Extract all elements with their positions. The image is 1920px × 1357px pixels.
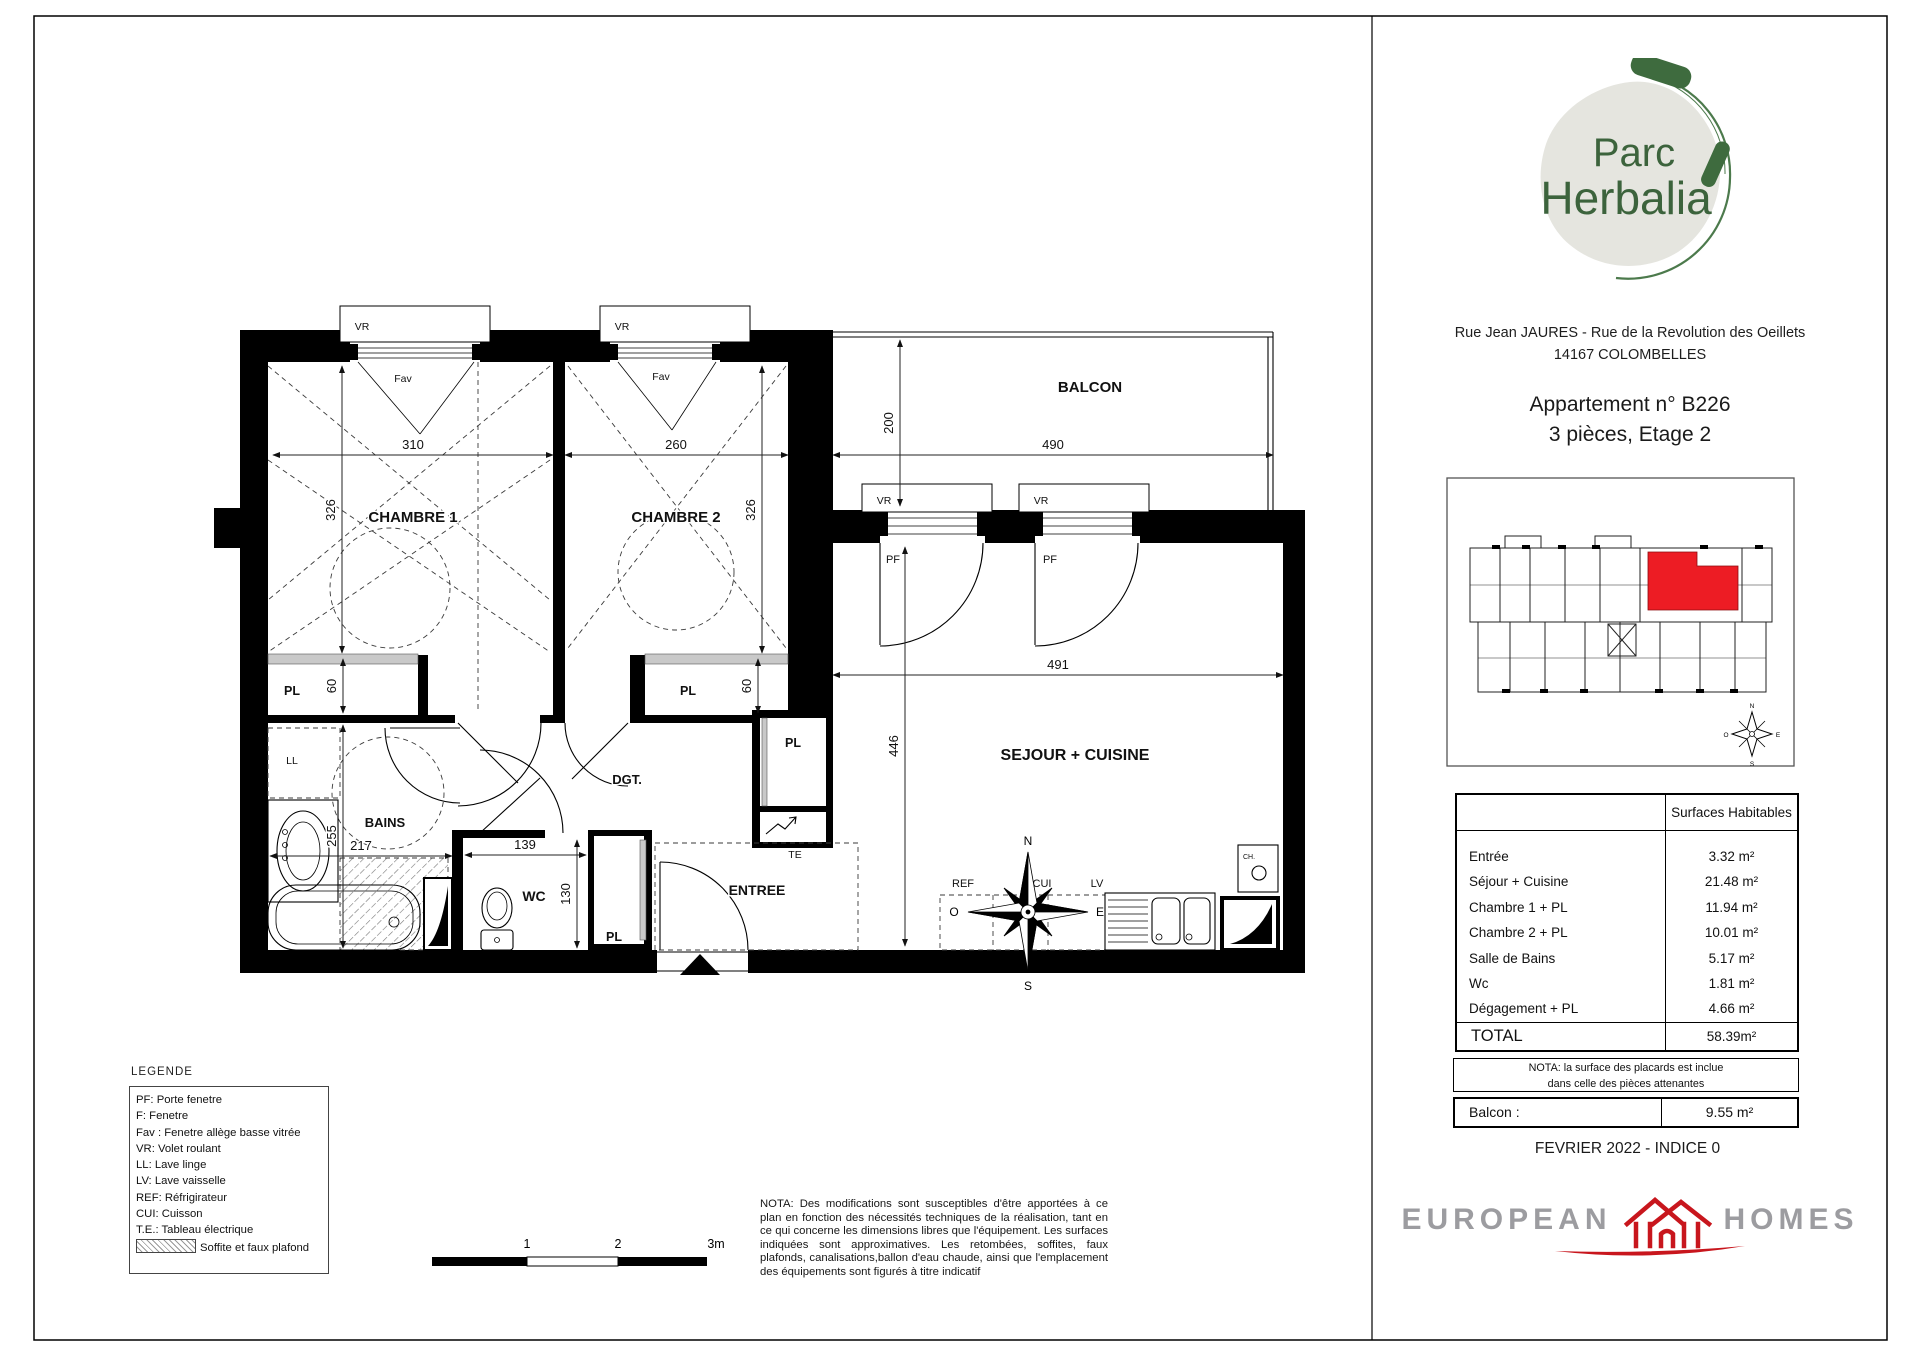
row-label: Salle de Bains — [1469, 946, 1665, 971]
scale-bar: 1 2 3m — [432, 1237, 725, 1266]
dim-c2-width: 260 — [665, 437, 687, 452]
compass-n: N — [1024, 834, 1033, 848]
label-sejour: SEJOUR + CUISINE — [1001, 747, 1150, 764]
row-label: Entrée — [1469, 844, 1665, 869]
row-label: Dégagement + PL — [1469, 996, 1665, 1021]
placards-nota-line2: dans celle des pièces attenantes — [1454, 1077, 1798, 1093]
dim-bains-height: 255 — [324, 825, 339, 847]
balcony-outline — [833, 332, 1273, 510]
soffite-swatch-icon — [136, 1239, 196, 1253]
legend-item: REF: Réfrigirateur — [136, 1190, 322, 1206]
tag-pf-1: PF — [886, 554, 900, 566]
compass-o: O — [949, 905, 958, 919]
total-value: 58.39m² — [1665, 1022, 1797, 1052]
tag-pl-2: PL — [680, 684, 696, 698]
label-chambre2: CHAMBRE 2 — [631, 509, 720, 526]
label-chambre1: CHAMBRE 1 — [368, 509, 457, 526]
legend-item: LV: Lave vaisselle — [136, 1173, 322, 1189]
row-label: Wc — [1469, 971, 1665, 996]
scale-2: 2 — [615, 1237, 622, 1251]
legend-item: VR: Volet roulant — [136, 1141, 322, 1157]
keyplan: N E S O — [1447, 478, 1794, 768]
tag-vr-1: VR — [355, 321, 370, 333]
dim-sejour-height: 446 — [886, 735, 901, 757]
tag-pl-4: PL — [606, 930, 622, 944]
legend-title: LEGENDE — [131, 1066, 193, 1078]
legend-swatch-row: Soffite et faux plafond — [136, 1239, 322, 1256]
keyplan-compass-n: N — [1750, 703, 1755, 710]
scale-1: 1 — [524, 1237, 531, 1251]
logo-word-herbalia: Herbalia — [1540, 172, 1712, 224]
dim-closet2: 60 — [739, 679, 754, 693]
label-dgt: DGT. — [612, 772, 642, 787]
label-wc: WC — [522, 888, 545, 904]
row-label: Séjour + Cuisine — [1469, 869, 1665, 894]
legend-item: PF: Porte fenetre — [136, 1092, 322, 1108]
document-date: FEVRIER 2022 - INDICE 0 — [1455, 1140, 1800, 1158]
tag-vr-4: VR — [1034, 495, 1049, 507]
legend-box: PF: Porte fenetre F: Fenetre Fav : Fenet… — [129, 1086, 329, 1274]
row-label: Chambre 2 + PL — [1469, 920, 1665, 945]
row-value: 10.01 m² — [1666, 920, 1797, 945]
compass-e: E — [1096, 905, 1104, 919]
row-value: 4.66 m² — [1666, 996, 1797, 1021]
balcon-row: Balcon : 9.55 m² — [1453, 1097, 1799, 1128]
legend-swatch-label: Soffite et faux plafond — [200, 1242, 309, 1254]
address-line1: Rue Jean JAURES - Rue de la Revolution d… — [1380, 322, 1880, 344]
tag-ch: CH. — [1243, 854, 1255, 861]
equipment-tags: VR VR VR VR Fav Fav PF PF PL PL PL PL LL… — [284, 321, 1255, 944]
brand-swoosh-icon — [1555, 1243, 1745, 1259]
label-balcon: BALCON — [1058, 379, 1122, 396]
total-label: TOTAL — [1457, 1022, 1665, 1052]
surfaces-table: Surfaces Habitables Entrée Séjour + Cuis… — [1455, 793, 1799, 1052]
tag-vr-2: VR — [615, 321, 630, 333]
tag-te: TE — [788, 849, 801, 861]
entrance-arrow-icon — [680, 954, 720, 975]
label-bains: BAINS — [365, 815, 406, 830]
legend-item: Fav : Fenetre allège basse vitrée — [136, 1125, 322, 1141]
dim-sejour-width: 491 — [1047, 657, 1069, 672]
brand-word-european: EUROPEAN — [1401, 1203, 1611, 1237]
keyplan-compass-s: S — [1750, 761, 1755, 768]
dim-wc-height: 130 — [558, 883, 573, 905]
label-entree: ENTREE — [729, 882, 786, 898]
wc-fixtures — [481, 888, 513, 950]
legend-item: T.E.: Tableau électrique — [136, 1222, 322, 1238]
tag-pf-2: PF — [1043, 554, 1057, 566]
dim-balcon-depth: 200 — [881, 412, 896, 434]
tag-lv: LV — [1091, 878, 1104, 890]
scale-3m: 3m — [707, 1237, 724, 1251]
legend-item: CUI: Cuisson — [136, 1206, 322, 1222]
surfaces-header: Surfaces Habitables — [1665, 795, 1797, 831]
row-value: 21.48 m² — [1666, 869, 1797, 894]
surfaces-values: 3.32 m² 21.48 m² 11.94 m² 10.01 m² 5.17 … — [1665, 831, 1797, 1022]
address-line2: 14167 COLOMBELLES — [1380, 344, 1880, 366]
legend-item: LL: Lave linge — [136, 1157, 322, 1173]
balcon-value: 9.55 m² — [1661, 1099, 1797, 1126]
placards-nota: NOTA: la surface des placards est inclue… — [1453, 1058, 1799, 1092]
floorplan-document-page: 310 260 490 326 326 200 491 446 60 60 25… — [0, 0, 1920, 1357]
row-value: 3.32 m² — [1666, 844, 1797, 869]
dim-c2-height: 326 — [743, 499, 758, 521]
tag-ll: LL — [286, 755, 298, 767]
placards-nota-line1: NOTA: la surface des placards est inclue — [1454, 1061, 1798, 1077]
dim-closet1: 60 — [324, 679, 339, 693]
parc-herbalia-logo-art: Parc Herbalia — [1512, 58, 1748, 300]
compass-s: S — [1024, 979, 1032, 993]
tag-fav-2: Fav — [652, 371, 670, 383]
row-label: Chambre 1 + PL — [1469, 895, 1665, 920]
row-value: 1.81 m² — [1666, 971, 1797, 996]
surfaces-labels: Entrée Séjour + Cuisine Chambre 1 + PL C… — [1457, 831, 1665, 1022]
logo-word-parc: Parc — [1593, 131, 1675, 175]
tag-pl-1: PL — [284, 684, 300, 698]
surfaces-header-empty — [1457, 795, 1665, 831]
keyplan-compass-e: E — [1776, 732, 1781, 739]
nota-paragraph: NOTA: Des modifications sont susceptible… — [760, 1198, 1108, 1279]
dim-c1-width: 310 — [402, 437, 424, 452]
tag-cui: CUI — [1033, 878, 1052, 890]
apartment-number: Appartement n° B226 — [1380, 390, 1880, 420]
parc-herbalia-logo: Parc Herbalia — [1512, 58, 1748, 300]
keyplan-compass-o: O — [1723, 732, 1728, 739]
apartment-type: 3 pièces, Etage 2 — [1380, 420, 1880, 450]
row-value: 5.17 m² — [1666, 946, 1797, 971]
tag-ref: REF — [952, 878, 974, 890]
dim-c1-height: 326 — [323, 499, 338, 521]
balcon-label: Balcon : — [1455, 1099, 1661, 1126]
project-address: Rue Jean JAURES - Rue de la Revolution d… — [1380, 322, 1880, 367]
bedroom-windows — [340, 306, 750, 434]
legend-item: F: Fenetre — [136, 1108, 322, 1124]
tag-vr-3: VR — [877, 495, 892, 507]
dim-balcon-width: 490 — [1042, 437, 1064, 452]
row-value: 11.94 m² — [1666, 895, 1797, 920]
dim-bains-width: 217 — [350, 838, 372, 853]
dim-wc-width: 139 — [514, 837, 536, 852]
tag-fav-1: Fav — [394, 373, 412, 385]
tag-pl-3: PL — [785, 736, 801, 750]
brand-word-homes: HOMES — [1724, 1203, 1859, 1237]
apartment-title: Appartement n° B226 3 pièces, Etage 2 — [1380, 390, 1880, 451]
